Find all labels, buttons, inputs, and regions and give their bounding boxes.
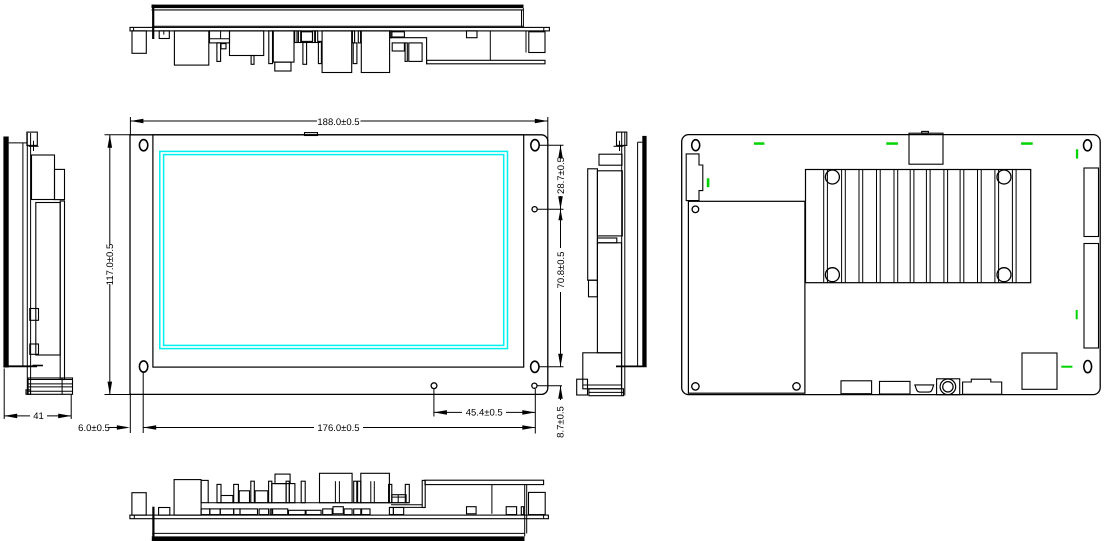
svg-text:70.8±0.5: 70.8±0.5 — [556, 252, 567, 289]
svg-text:45.4±0.5: 45.4±0.5 — [466, 408, 503, 419]
svg-text:6.0±0.5: 6.0±0.5 — [78, 423, 110, 434]
svg-text:188.0±0.5: 188.0±0.5 — [317, 117, 359, 128]
svg-text:41: 41 — [33, 411, 44, 422]
svg-text:117.0±0.5: 117.0±0.5 — [105, 244, 116, 286]
svg-text:8.7±0.5: 8.7±0.5 — [555, 406, 566, 438]
svg-text:28.7±0.5: 28.7±0.5 — [556, 157, 567, 194]
svg-text:176.0±0.5: 176.0±0.5 — [317, 423, 359, 434]
